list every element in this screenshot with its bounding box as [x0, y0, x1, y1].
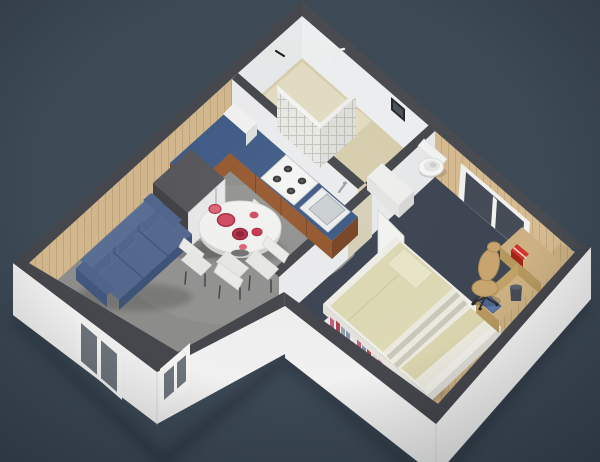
vignette [0, 0, 600, 462]
scene-shapes [0, 0, 600, 462]
isometric-floor-plan-render [0, 0, 600, 462]
floor-plan-screenshot [0, 0, 600, 462]
